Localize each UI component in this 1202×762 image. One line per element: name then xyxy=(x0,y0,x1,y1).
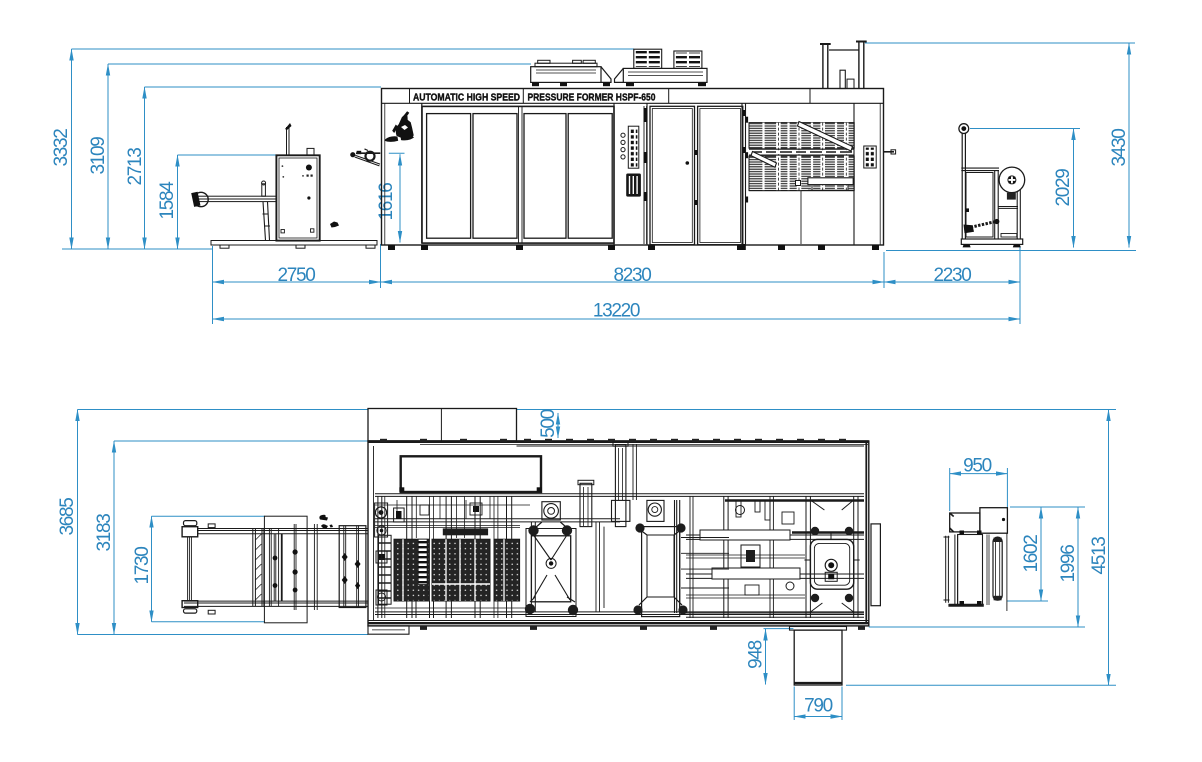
svg-text:4513: 4513 xyxy=(1089,537,1110,575)
svg-text:2029: 2029 xyxy=(1053,169,1074,207)
svg-text:3430: 3430 xyxy=(1109,129,1130,167)
svg-text:AUTOMATIC HIGH SPEED: AUTOMATIC HIGH SPEED xyxy=(413,91,520,103)
svg-text:2750: 2750 xyxy=(277,265,315,286)
svg-text:500: 500 xyxy=(538,409,559,438)
svg-text:PRESSURE FORMER HSPF-650: PRESSURE FORMER HSPF-650 xyxy=(528,91,656,103)
svg-text:3183: 3183 xyxy=(94,514,115,552)
svg-text:3685: 3685 xyxy=(57,498,78,536)
svg-text:13220: 13220 xyxy=(593,301,640,322)
svg-text:1584: 1584 xyxy=(157,181,178,220)
svg-text:3109: 3109 xyxy=(88,137,109,175)
svg-text:950: 950 xyxy=(963,456,992,477)
svg-text:790: 790 xyxy=(804,696,833,717)
svg-text:8230: 8230 xyxy=(613,265,651,286)
svg-text:2230: 2230 xyxy=(933,265,971,286)
svg-text:3332: 3332 xyxy=(51,129,72,167)
svg-text:1616: 1616 xyxy=(376,183,397,221)
svg-text:1730: 1730 xyxy=(132,547,153,585)
svg-text:1996: 1996 xyxy=(1058,545,1079,583)
svg-text:2713: 2713 xyxy=(125,148,146,186)
svg-text:1602: 1602 xyxy=(1021,535,1042,573)
svg-text:948: 948 xyxy=(746,640,767,669)
